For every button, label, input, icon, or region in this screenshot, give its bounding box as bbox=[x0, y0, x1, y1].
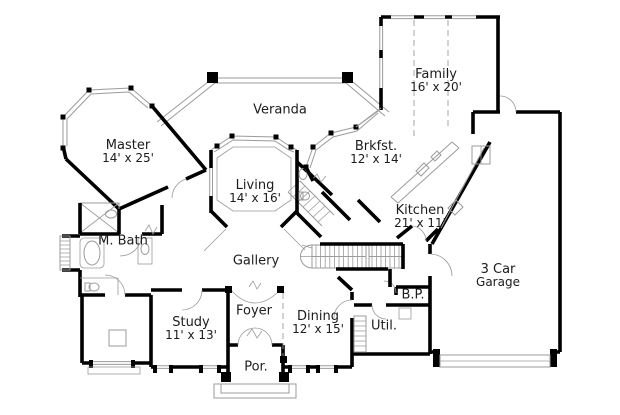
veranda-column-icon bbox=[342, 72, 353, 83]
room-label-brkfst: Brkfst. 12' x 14' bbox=[350, 140, 402, 166]
porch-post-icon bbox=[221, 372, 231, 382]
arch-squiggle bbox=[249, 281, 261, 289]
master-closet bbox=[80, 203, 119, 234]
porch-post-icon bbox=[279, 372, 289, 382]
door-squiggle bbox=[247, 329, 262, 338]
porch-steps bbox=[214, 384, 296, 398]
room-label-garage: 3 Car Garage bbox=[476, 263, 520, 289]
garage-door-arc bbox=[430, 254, 452, 276]
room-label-kitchen: Kitchen 21' x 11' bbox=[394, 204, 446, 230]
room-label-living: Living 14' x 16' bbox=[229, 179, 281, 205]
veranda-column-icon bbox=[207, 72, 218, 83]
room-label-master: Master 14' x 25' bbox=[102, 139, 154, 165]
foyer-column-icon bbox=[280, 356, 287, 363]
front-door-arcs bbox=[238, 328, 272, 345]
room-label-porch: Por. bbox=[244, 361, 268, 374]
flex-room bbox=[82, 295, 151, 374]
room-label-mbath: M. Bath bbox=[98, 235, 148, 248]
garage-door-post-icon bbox=[550, 349, 557, 367]
floor-plan: Veranda Master 14' x 25' Living 14' x 16… bbox=[0, 0, 620, 415]
stairs bbox=[288, 181, 438, 287]
room-label-util: Util. bbox=[371, 320, 397, 333]
rear-door-arc bbox=[500, 96, 516, 112]
veranda-outline bbox=[157, 72, 389, 126]
floor-plan-drawing bbox=[0, 0, 620, 415]
room-label-foyer: Foyer bbox=[236, 305, 272, 318]
room-label-veranda: Veranda bbox=[253, 104, 307, 117]
garage-door-post-icon bbox=[433, 349, 440, 367]
room-label-dining: Dining 12' x 15' bbox=[292, 310, 344, 336]
util-door-arc bbox=[372, 305, 386, 319]
foyer-column-icon bbox=[225, 286, 232, 293]
sink-icon bbox=[106, 210, 117, 218]
study-door-arc bbox=[182, 290, 202, 310]
bp-cabinet bbox=[399, 308, 411, 319]
foyer-arch bbox=[232, 291, 279, 303]
room-label-bp: B.P. bbox=[402, 289, 425, 302]
room-label-study: Study 11' x 13' bbox=[165, 316, 217, 342]
foyer-column-icon bbox=[277, 286, 284, 293]
room-label-family: Family 16' x 20' bbox=[410, 68, 462, 94]
master-bath bbox=[60, 205, 162, 297]
garage bbox=[430, 112, 560, 367]
master-door-arc bbox=[172, 179, 186, 198]
room-label-gallery: Gallery bbox=[233, 255, 279, 268]
